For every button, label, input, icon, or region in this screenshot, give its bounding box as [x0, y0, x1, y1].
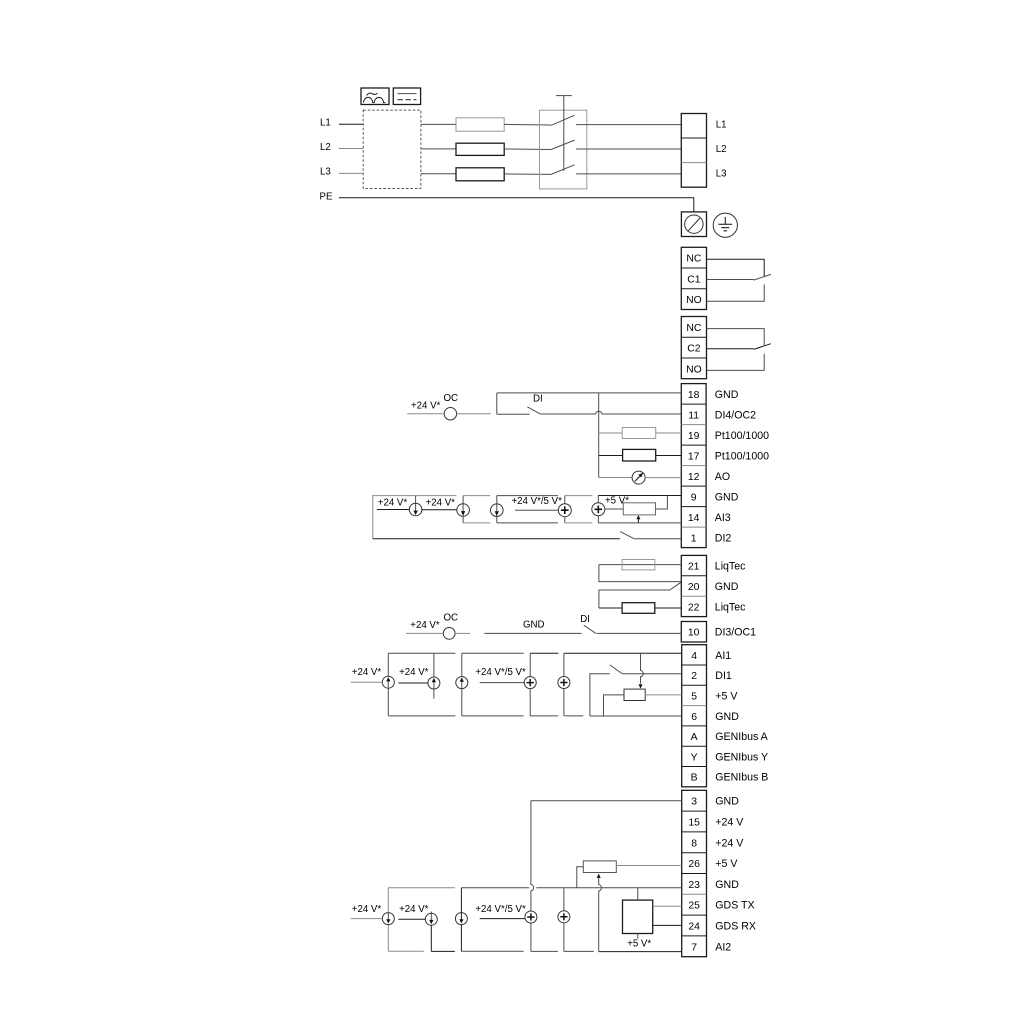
- svg-text:15: 15: [688, 818, 700, 829]
- svg-text:NC: NC: [686, 323, 702, 334]
- svg-text:23: 23: [688, 880, 700, 891]
- svg-text:26: 26: [688, 859, 700, 870]
- svg-text:DI1: DI1: [715, 670, 732, 682]
- svg-text:DI2: DI2: [715, 532, 732, 544]
- svg-text:24: 24: [688, 922, 700, 933]
- svg-text:C1: C1: [687, 274, 701, 285]
- svg-text:+5 V*: +5 V*: [627, 939, 651, 950]
- svg-text:NO: NO: [686, 364, 702, 375]
- svg-text:+24 V: +24 V: [715, 837, 744, 849]
- svg-text:+24 V*/5 V*: +24 V*/5 V*: [512, 496, 563, 507]
- svg-text:+24 V*/5 V*: +24 V*/5 V*: [475, 904, 526, 915]
- svg-text:5: 5: [691, 692, 697, 703]
- svg-text:GND: GND: [715, 389, 739, 401]
- svg-text:+24 V*: +24 V*: [411, 401, 441, 412]
- svg-text:+5 V: +5 V: [715, 691, 738, 703]
- svg-text:25: 25: [688, 901, 700, 912]
- svg-text:GENIbus A: GENIbus A: [715, 731, 768, 743]
- svg-text:NC: NC: [686, 254, 702, 265]
- svg-text:LiqTec: LiqTec: [715, 601, 746, 613]
- svg-text:DI3/OC1: DI3/OC1: [715, 627, 756, 639]
- svg-text:AI3: AI3: [715, 512, 731, 524]
- svg-text:20: 20: [688, 582, 700, 593]
- svg-text:GND: GND: [715, 796, 739, 808]
- svg-text:9: 9: [691, 492, 697, 503]
- svg-text:AI2: AI2: [715, 941, 731, 953]
- svg-text:8: 8: [691, 838, 697, 849]
- svg-text:2: 2: [691, 671, 697, 682]
- svg-text:Y: Y: [691, 752, 698, 763]
- svg-text:DI: DI: [580, 614, 590, 625]
- svg-text:+24 V*: +24 V*: [399, 667, 429, 678]
- svg-text:L2: L2: [320, 142, 331, 153]
- svg-text:GND: GND: [715, 491, 739, 503]
- svg-text:+24 V*: +24 V*: [399, 904, 429, 915]
- svg-text:+24 V: +24 V: [715, 817, 744, 829]
- svg-text:4: 4: [691, 651, 697, 662]
- svg-text:OC: OC: [444, 393, 459, 404]
- svg-text:GND: GND: [715, 711, 739, 723]
- svg-text:21: 21: [688, 562, 700, 573]
- svg-text:+24 V*/5 V*: +24 V*/5 V*: [475, 667, 526, 678]
- svg-text:OC: OC: [444, 613, 459, 624]
- svg-text:10: 10: [688, 628, 700, 639]
- svg-text:A: A: [691, 732, 698, 743]
- svg-text:GDS TX: GDS TX: [715, 900, 754, 912]
- svg-text:Pt100/1000: Pt100/1000: [715, 450, 769, 462]
- svg-text:11: 11: [688, 410, 699, 421]
- svg-text:+24 V*: +24 V*: [352, 904, 382, 915]
- svg-text:GDS RX: GDS RX: [715, 921, 756, 933]
- svg-text:17: 17: [688, 451, 700, 462]
- svg-text:1: 1: [691, 533, 697, 544]
- svg-text:C2: C2: [687, 344, 701, 355]
- svg-text:+24 V*: +24 V*: [352, 667, 382, 678]
- svg-text:DI: DI: [533, 394, 543, 405]
- svg-text:19: 19: [688, 431, 700, 442]
- svg-text:NO: NO: [686, 295, 702, 306]
- svg-text:14: 14: [688, 513, 700, 524]
- svg-text:GND: GND: [715, 581, 739, 593]
- svg-text:+24 V*: +24 V*: [426, 497, 456, 508]
- svg-text:Pt100/1000: Pt100/1000: [715, 430, 769, 442]
- svg-text:+5 V: +5 V: [715, 858, 738, 870]
- svg-text:18: 18: [688, 390, 700, 401]
- svg-text:B: B: [691, 773, 698, 784]
- svg-text:L1: L1: [716, 119, 727, 130]
- svg-text:7: 7: [691, 942, 697, 953]
- svg-text:L2: L2: [716, 144, 727, 155]
- svg-text:6: 6: [691, 712, 697, 723]
- svg-text:DI4/OC2: DI4/OC2: [715, 409, 756, 421]
- svg-text:GENIbus Y: GENIbus Y: [715, 751, 768, 763]
- svg-text:GND: GND: [523, 620, 545, 631]
- svg-text:L3: L3: [716, 169, 727, 180]
- svg-text:LiqTec: LiqTec: [715, 561, 746, 573]
- svg-text:AI1: AI1: [715, 650, 731, 662]
- svg-text:GND: GND: [715, 879, 739, 891]
- svg-text:GENIbus B: GENIbus B: [715, 772, 768, 784]
- svg-text:L1: L1: [320, 117, 331, 128]
- svg-text:L3: L3: [320, 167, 331, 178]
- svg-text:AO: AO: [715, 471, 730, 483]
- svg-text:PE: PE: [320, 192, 333, 203]
- svg-text:+24 V*: +24 V*: [378, 497, 408, 508]
- svg-text:12: 12: [688, 472, 700, 483]
- svg-text:22: 22: [688, 602, 700, 613]
- svg-text:+24 V*: +24 V*: [410, 620, 440, 631]
- svg-text:3: 3: [691, 797, 697, 808]
